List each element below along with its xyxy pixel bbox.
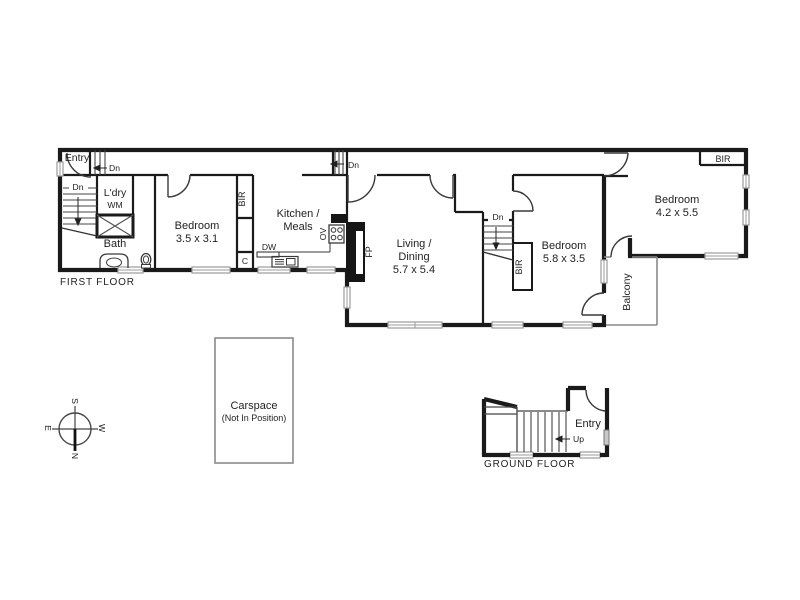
bedroom2-balcony-door-arc (582, 293, 604, 315)
window-midlines (60, 162, 746, 455)
dim-label-bedroom2: 5.8 x 3.5 (543, 253, 585, 265)
stairs-down-label-4: Dn (493, 212, 504, 222)
floor-plan-drawing: Entry Dn Dn L'dry WM Bath Bedroom 3.5 x … (0, 0, 800, 600)
bathtub (100, 254, 128, 268)
living-door1-arc (348, 175, 375, 202)
room-label-entry-gf: Entry (575, 418, 601, 430)
carspace-label: Carspace (230, 400, 277, 412)
floor-plan-page: Entry Dn Dn L'dry WM Bath Bedroom 3.5 x … (0, 0, 800, 600)
room-label-kitchen-line2: Meals (283, 221, 313, 233)
first-floor-title: FIRST FLOOR (60, 277, 135, 288)
bedroom2-door-arc (513, 191, 533, 211)
room-label-bedroom1: Bedroom (175, 220, 220, 232)
bir-label-2: BIR (514, 259, 524, 275)
kitchen-sink (272, 257, 298, 268)
bir-label-3: BIR (715, 154, 731, 164)
windows (57, 162, 749, 458)
stairs-down-label-1: Dn (109, 163, 120, 173)
room-label-bath: Bath (104, 238, 127, 250)
room-label-bedroom3: Bedroom (655, 194, 700, 206)
room-label-living-line1: Living / (397, 238, 433, 250)
ground-floor-title: GROUND FLOOR (484, 459, 575, 470)
carspace-sublabel: (Not In Position) (222, 413, 287, 423)
cupboard-label: C (242, 256, 248, 266)
oven-label: OV (318, 228, 328, 241)
stairs-down-label-2: Dn (73, 182, 84, 192)
labels: Entry Dn Dn L'dry WM Bath Bedroom 3.5 x … (43, 152, 731, 470)
ground-floor-thin-lines (484, 407, 568, 452)
dim-label-living: 5.7 x 5.4 (393, 264, 435, 276)
room-label-kitchen-line1: Kitchen / (277, 208, 321, 220)
middle-stairs-treads (483, 226, 513, 250)
bir-label-1: BIR (237, 191, 247, 207)
bedroom1-door-arc (168, 175, 190, 197)
room-label-entry-ff: Entry (65, 152, 90, 164)
dishwasher-label: DW (262, 242, 277, 252)
room-label-bedroom2: Bedroom (542, 240, 587, 252)
compass-south-label: S (70, 398, 80, 404)
living-door2-arc (430, 175, 453, 198)
compass-west-label: W (97, 424, 107, 433)
dim-label-bedroom3: 4.2 x 5.5 (656, 207, 698, 219)
room-label-living-line2: Dining (398, 251, 429, 263)
dim-label-bedroom1: 3.5 x 3.1 (176, 233, 218, 245)
shower (97, 215, 133, 237)
balcony-label: Balcony (621, 273, 633, 311)
toilet (141, 254, 151, 269)
compass (52, 406, 98, 451)
ground-entry-side-panel (604, 430, 609, 445)
washing-machine-label: WM (107, 200, 122, 210)
room-label-laundry: L'dry (104, 187, 127, 199)
compass-north-label: N (70, 453, 80, 459)
fireplace-label: FP (364, 246, 374, 258)
stairs-up-label: Up (573, 434, 584, 444)
compass-east-label: E (43, 425, 53, 431)
cooktop (329, 225, 344, 243)
bedroom3-door-arc (604, 153, 628, 176)
ground-stairs-treads (524, 412, 566, 452)
stairs-down-label-3: Dn (348, 160, 359, 170)
ground-entry-door-arc (586, 390, 607, 411)
